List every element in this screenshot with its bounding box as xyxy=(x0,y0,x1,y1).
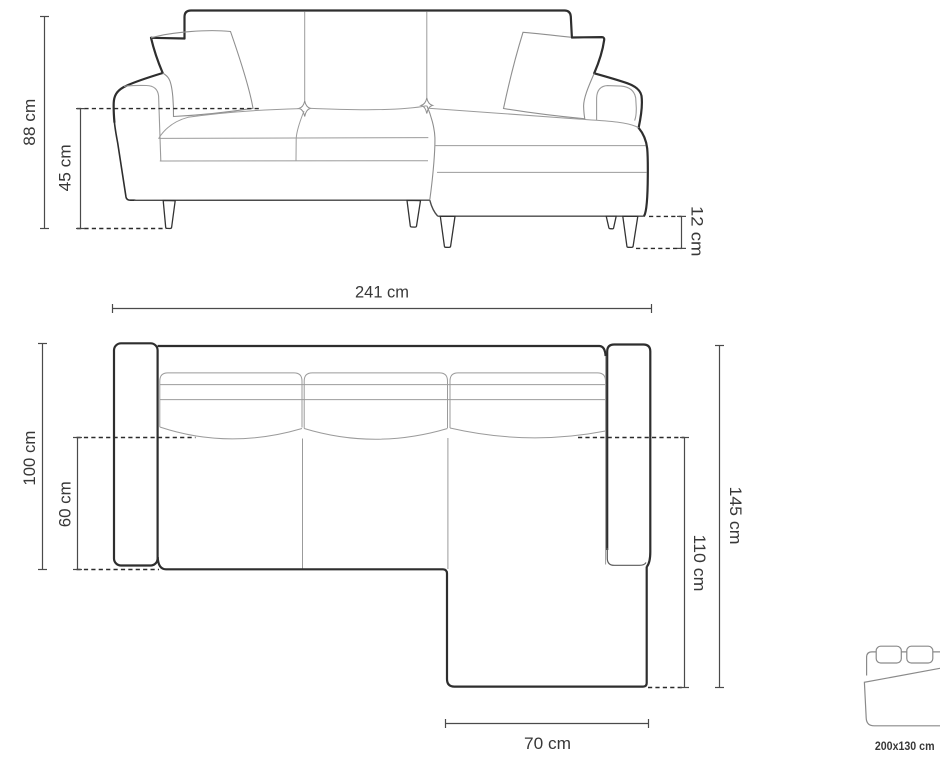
svg-text:145 cm: 145 cm xyxy=(726,487,745,545)
svg-text:100 cm: 100 cm xyxy=(20,431,39,486)
svg-text:60 cm: 60 cm xyxy=(56,481,75,527)
svg-text:45 cm: 45 cm xyxy=(56,144,75,191)
svg-text:88 cm: 88 cm xyxy=(20,99,39,146)
svg-text:110 cm: 110 cm xyxy=(690,535,709,592)
svg-text:12 cm: 12 cm xyxy=(688,206,707,257)
svg-text:200x130 cm: 200x130 cm xyxy=(875,739,935,753)
svg-text:70 cm: 70 cm xyxy=(524,734,571,753)
svg-text:241 cm: 241 cm xyxy=(355,282,409,301)
